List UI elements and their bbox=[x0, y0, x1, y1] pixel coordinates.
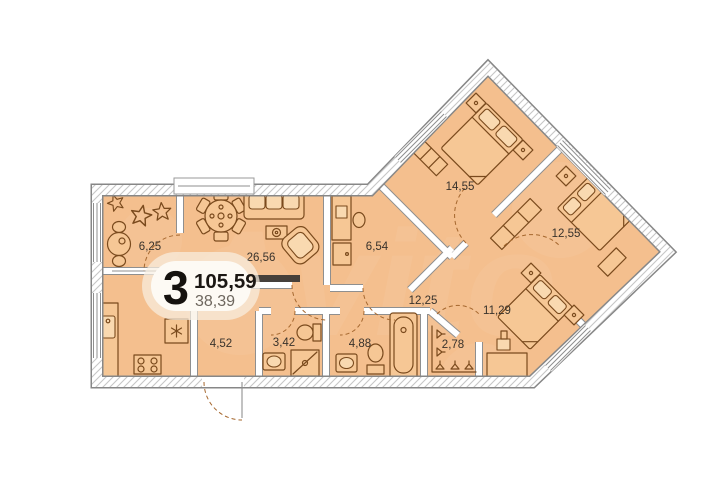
badge-total-area: 105,59 bbox=[194, 270, 257, 293]
shower-icon bbox=[291, 350, 319, 376]
sink-icon bbox=[336, 354, 357, 372]
room-area-label-bedroom-2: 12,55 bbox=[552, 228, 581, 240]
room-area-label-wardrobe: 2,78 bbox=[442, 339, 464, 351]
room-area-label-loggia: 6,25 bbox=[139, 241, 161, 253]
stove-icon bbox=[134, 355, 161, 374]
window bbox=[94, 293, 101, 358]
room-area-label-kitchen-living: 26,56 bbox=[247, 252, 276, 264]
window bbox=[174, 178, 254, 194]
area-badge: 3 105,59 38,39 bbox=[142, 252, 260, 320]
badge-rooms-count: 3 bbox=[163, 261, 189, 314]
room-area-label-bedroom-1: 14,55 bbox=[446, 181, 475, 193]
toilet-icon bbox=[297, 324, 321, 341]
tv-stand-icon bbox=[254, 275, 300, 282]
floor-plan-page: Avito bbox=[0, 0, 720, 500]
window bbox=[94, 203, 101, 262]
side-table-icon bbox=[266, 226, 287, 239]
sink-icon bbox=[263, 353, 285, 370]
room-area-label-entry-hall: 4,52 bbox=[210, 338, 232, 350]
room-area-label-shower-room: 3,42 bbox=[273, 337, 295, 349]
fridge-icon bbox=[165, 319, 188, 343]
room-area-label-hallway: 12,25 bbox=[409, 295, 438, 307]
floor-plan-svg: Avito bbox=[0, 0, 720, 500]
bathtub-icon bbox=[390, 313, 417, 379]
room-area-label-study: 6,54 bbox=[366, 241, 389, 253]
room-area-label-bedroom-3: 11,29 bbox=[483, 305, 511, 317]
badge-living-area: 38,39 bbox=[195, 293, 235, 310]
room-area-label-bathroom: 4,88 bbox=[349, 338, 371, 350]
